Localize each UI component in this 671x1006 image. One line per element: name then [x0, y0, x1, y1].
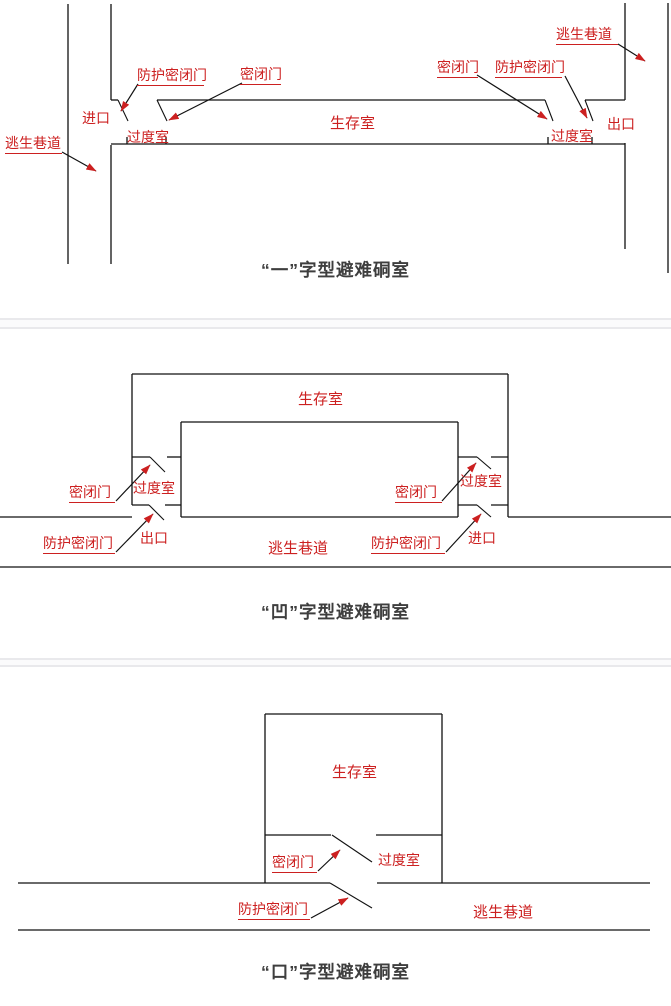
label-protective-door-left: 防护密闭门	[137, 68, 204, 86]
label-sealed-door-right: 密闭门	[395, 485, 442, 503]
section-separator-1	[0, 318, 671, 329]
label-protective-door-right: 防护密闭门	[371, 536, 445, 554]
label-entrance: 进口	[82, 111, 110, 126]
label-sealed-door-left: 密闭门	[240, 67, 281, 85]
label-transition-room-left: 过度室	[127, 130, 169, 145]
label-transition-room: 过度室	[378, 853, 420, 868]
section3-title: “口”字型避难硐室	[0, 959, 671, 984]
label-sealed-door-right: 密闭门	[437, 60, 478, 78]
label-protective-door-right: 防护密闭门	[495, 60, 562, 78]
diagram-canvas	[0, 0, 671, 1006]
section2-title: “凹”字型避难硐室	[0, 599, 671, 624]
section-separator-2	[0, 658, 671, 667]
section1-title: “一”字型避难硐室	[0, 257, 671, 282]
label-survival-room: 生存室	[298, 392, 343, 408]
section3-door-leaves	[330, 835, 372, 908]
refuge-chamber-diagram-page: 逃生巷道 进口 防护密闭门 密闭门 过度室 生存室 密闭门 防护密闭门 逃生巷道…	[0, 0, 671, 1006]
label-survival-room: 生存室	[330, 116, 375, 132]
label-sealed-door: 密闭门	[272, 855, 317, 873]
label-escape-tunnel-left: 逃生巷道	[5, 136, 62, 154]
label-entrance: 进口	[468, 531, 496, 546]
label-escape-tunnel: 逃生巷道	[268, 541, 328, 557]
label-exit: 出口	[607, 117, 635, 132]
label-sealed-door-left: 密闭门	[69, 485, 115, 503]
label-escape-tunnel-right: 逃生巷道	[556, 27, 618, 45]
section3-walls	[18, 714, 650, 930]
label-transition-room-left: 过度室	[133, 481, 175, 496]
label-exit: 出口	[140, 531, 168, 546]
label-transition-room-right: 过度室	[551, 129, 593, 144]
label-transition-room-right: 过度室	[460, 474, 502, 489]
label-survival-room: 生存室	[332, 765, 377, 781]
label-protective-door-left: 防护密闭门	[43, 536, 115, 554]
label-escape-tunnel: 逃生巷道	[473, 905, 533, 921]
label-protective-door: 防护密闭门	[238, 902, 310, 920]
